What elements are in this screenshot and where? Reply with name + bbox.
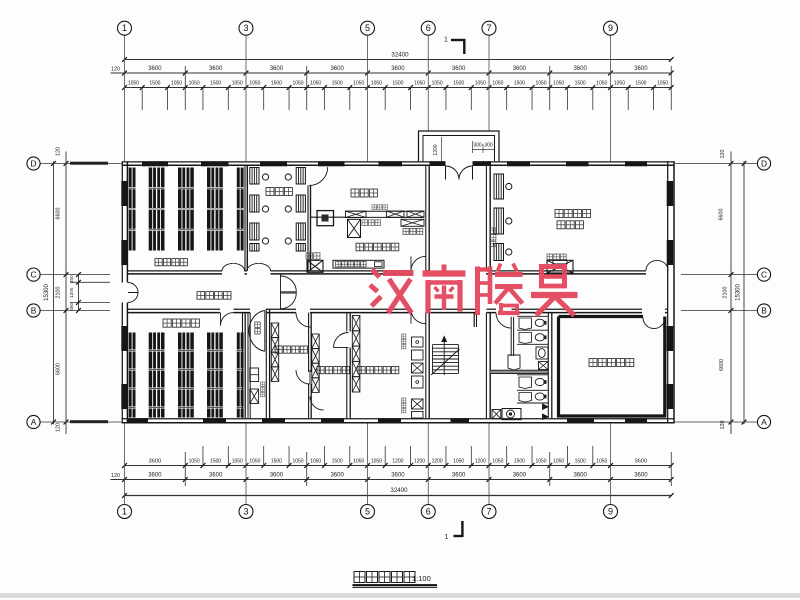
svg-text:1500: 1500 (575, 458, 586, 464)
svg-text:1050: 1050 (292, 80, 303, 86)
svg-text:1050: 1050 (453, 458, 464, 464)
svg-text:1500: 1500 (514, 458, 525, 464)
svg-text:3600: 3600 (149, 458, 161, 464)
svg-text:6: 6 (426, 507, 431, 517)
svg-text:300: 300 (473, 143, 482, 149)
svg-text:7: 7 (486, 507, 491, 517)
svg-text:B: B (761, 306, 767, 316)
svg-text:1050: 1050 (189, 458, 200, 464)
svg-text:1050: 1050 (292, 458, 303, 464)
svg-text:1050: 1050 (596, 458, 607, 464)
svg-text:1050: 1050 (189, 80, 200, 86)
svg-text:6600: 6600 (719, 209, 725, 221)
svg-text:3600: 3600 (270, 473, 284, 479)
svg-text:32400: 32400 (390, 487, 408, 494)
svg-text:6600: 6600 (719, 359, 725, 371)
svg-text:A: A (31, 417, 37, 427)
svg-text:120: 120 (56, 147, 62, 156)
svg-text:5: 5 (365, 23, 370, 33)
svg-text:1500: 1500 (514, 80, 525, 86)
svg-text:32400: 32400 (391, 52, 409, 59)
svg-text:1050: 1050 (232, 80, 243, 86)
svg-text:3: 3 (243, 507, 248, 517)
svg-text:3600: 3600 (573, 66, 587, 72)
svg-text:1050: 1050 (553, 458, 564, 464)
svg-text:3600: 3600 (452, 66, 466, 72)
svg-text:1: 1 (445, 534, 449, 541)
svg-text:3600: 3600 (209, 473, 223, 479)
svg-text:1200: 1200 (433, 144, 439, 155)
svg-text:1500: 1500 (271, 458, 282, 464)
svg-text:6: 6 (426, 23, 431, 33)
svg-text:3600: 3600 (148, 66, 162, 72)
svg-text:3600: 3600 (330, 473, 344, 479)
svg-text:1050: 1050 (596, 80, 607, 86)
svg-text:15300: 15300 (736, 283, 742, 300)
svg-text:9: 9 (608, 23, 613, 33)
svg-text:2100: 2100 (56, 287, 62, 299)
svg-text:1050: 1050 (310, 458, 321, 464)
svg-text:6600: 6600 (56, 208, 62, 220)
svg-text:15300: 15300 (44, 283, 50, 300)
svg-text:3600: 3600 (270, 66, 284, 72)
svg-text:1200: 1200 (414, 458, 425, 464)
svg-text:120: 120 (111, 67, 120, 73)
svg-text:1200: 1200 (432, 458, 443, 464)
svg-text:3600: 3600 (634, 66, 648, 72)
svg-text:1500: 1500 (453, 80, 464, 86)
svg-text:7: 7 (486, 23, 491, 33)
svg-text:1200: 1200 (69, 287, 74, 298)
svg-text:3600: 3600 (513, 473, 527, 479)
svg-text:A: A (761, 417, 767, 427)
svg-text:1050: 1050 (492, 458, 503, 464)
svg-text:3600: 3600 (573, 473, 587, 479)
svg-text:1050: 1050 (432, 80, 443, 86)
svg-text:1: 1 (444, 37, 448, 44)
svg-text:3600: 3600 (391, 473, 405, 479)
svg-text:1050: 1050 (310, 80, 321, 86)
svg-text:1050: 1050 (614, 80, 625, 86)
svg-text:3600: 3600 (330, 66, 344, 72)
svg-text:1050: 1050 (553, 80, 564, 86)
svg-text:1050: 1050 (414, 80, 425, 86)
svg-text:3600: 3600 (391, 66, 405, 72)
svg-text:1500: 1500 (210, 80, 221, 86)
svg-text:1050: 1050 (492, 80, 503, 86)
svg-text:1050: 1050 (353, 80, 364, 86)
svg-text:1200: 1200 (392, 458, 403, 464)
svg-text:1050: 1050 (535, 80, 546, 86)
svg-text:3600: 3600 (634, 473, 648, 479)
svg-text:3: 3 (243, 23, 248, 33)
svg-text:D: D (30, 159, 36, 169)
svg-text:3600: 3600 (148, 473, 162, 479)
svg-text:120: 120 (720, 150, 726, 159)
svg-text:B: B (31, 306, 37, 316)
svg-text:1050: 1050 (371, 458, 382, 464)
svg-text:450: 450 (69, 303, 74, 311)
svg-text:300: 300 (484, 143, 493, 149)
svg-text:1200: 1200 (475, 458, 486, 464)
svg-text:1500: 1500 (210, 458, 221, 464)
svg-text:1050: 1050 (249, 458, 260, 464)
svg-text:1:100: 1:100 (412, 574, 431, 583)
svg-text:1050: 1050 (371, 80, 382, 86)
svg-text:1050: 1050 (475, 80, 486, 86)
svg-text:3600: 3600 (635, 458, 647, 464)
svg-text:C: C (761, 270, 767, 280)
svg-text:1500: 1500 (635, 80, 646, 86)
svg-text:3600: 3600 (209, 66, 223, 72)
svg-text:3600: 3600 (513, 66, 527, 72)
svg-text:1050: 1050 (535, 458, 546, 464)
svg-text:1050: 1050 (171, 80, 182, 86)
svg-text:1500: 1500 (332, 458, 343, 464)
svg-text:1500: 1500 (392, 80, 403, 86)
svg-text:120: 120 (111, 473, 120, 479)
svg-text:1500: 1500 (575, 80, 586, 86)
svg-text:1: 1 (122, 507, 127, 517)
svg-text:1500: 1500 (149, 80, 160, 86)
svg-text:5: 5 (365, 507, 370, 517)
svg-text:1050: 1050 (657, 80, 668, 86)
svg-text:6600: 6600 (56, 363, 62, 375)
svg-text:C: C (30, 270, 36, 280)
svg-text:3600: 3600 (452, 473, 466, 479)
svg-text:1500: 1500 (332, 80, 343, 86)
svg-text:2100: 2100 (723, 287, 729, 299)
svg-text:1050: 1050 (128, 80, 139, 86)
svg-text:1050: 1050 (249, 80, 260, 86)
svg-text:9: 9 (608, 507, 613, 517)
svg-text:120: 120 (56, 423, 62, 432)
svg-text:D: D (761, 159, 767, 169)
svg-text:1: 1 (122, 23, 127, 33)
svg-text:1050: 1050 (232, 458, 243, 464)
svg-text:1500: 1500 (271, 80, 282, 86)
svg-text:1050: 1050 (353, 458, 364, 464)
